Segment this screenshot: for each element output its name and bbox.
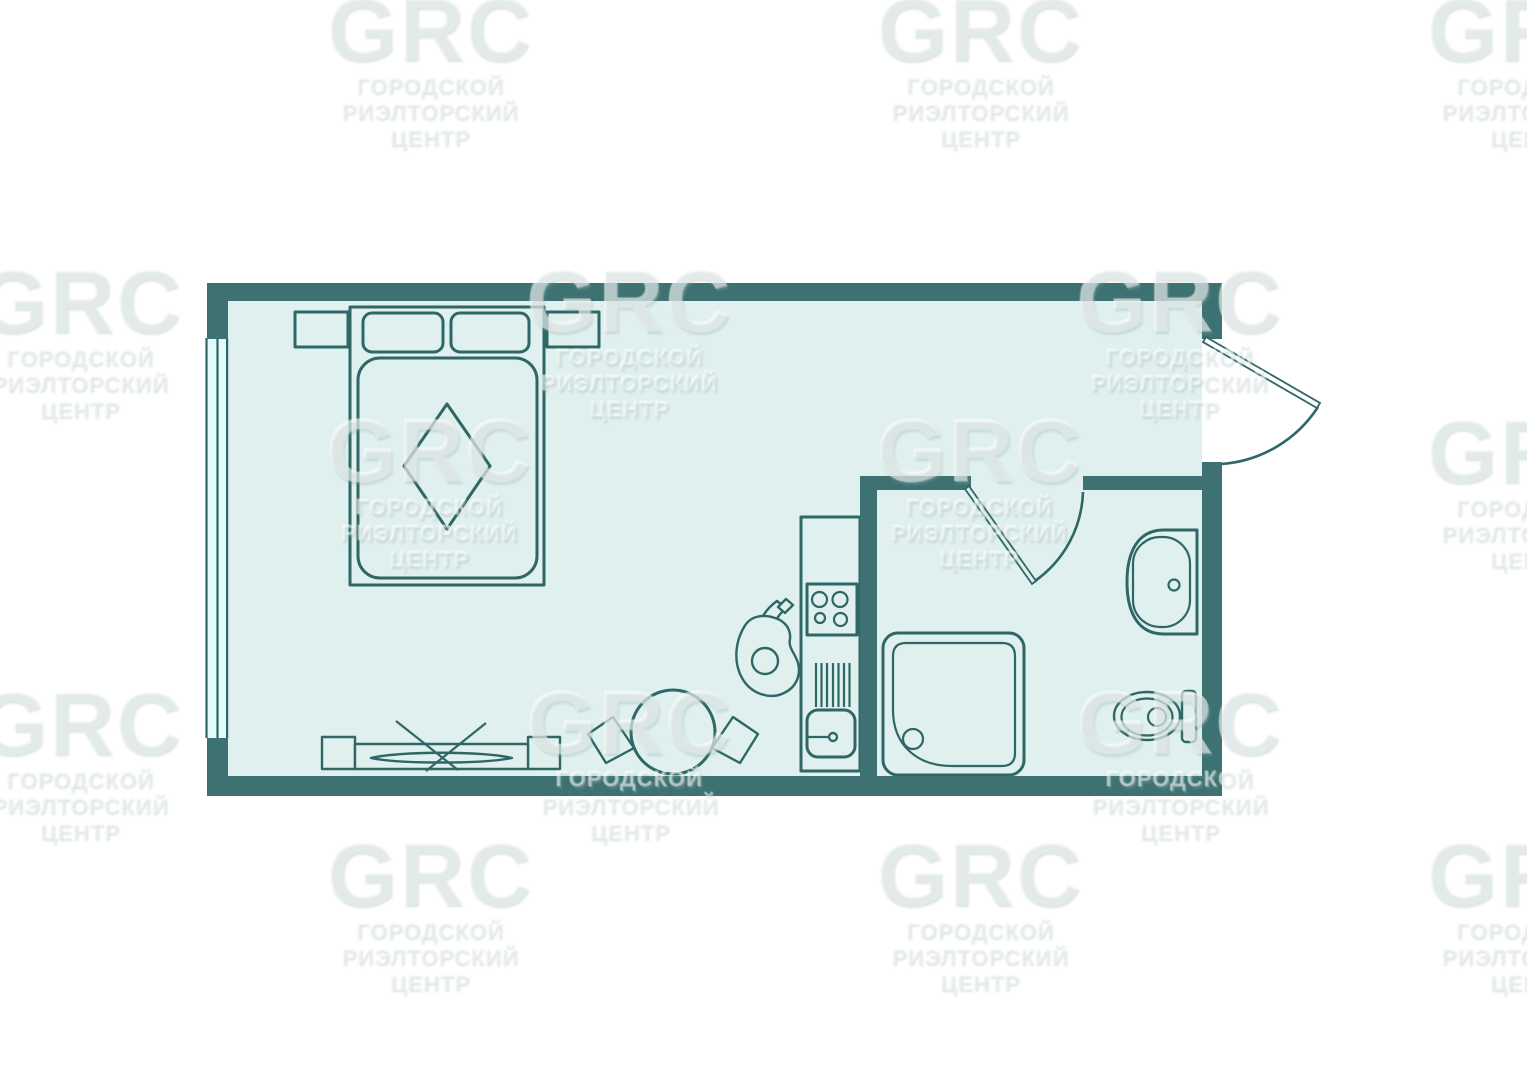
window xyxy=(205,338,228,738)
floor-plan-image xyxy=(0,0,1527,1080)
shower-tray xyxy=(883,633,1024,775)
wall-bottom xyxy=(207,776,1222,796)
pillow-left xyxy=(363,313,443,352)
wall-top xyxy=(207,283,1222,301)
entry-door-swing-arc xyxy=(1222,407,1318,464)
dining-table xyxy=(631,690,715,774)
person-head xyxy=(752,648,778,674)
tv-stand-left-end xyxy=(322,737,355,769)
window-frame-outer-line xyxy=(205,338,207,738)
toilet xyxy=(1114,691,1196,742)
wall-bathroom-top-right xyxy=(1083,476,1203,490)
wall-right-lower xyxy=(1202,462,1222,796)
wall-bathroom-top-left xyxy=(860,476,971,490)
faucet-knob xyxy=(829,733,837,741)
kitchen-block xyxy=(801,517,860,771)
entry-door xyxy=(1203,337,1320,464)
window-frame-middle-line xyxy=(216,338,218,738)
pillow-right xyxy=(451,313,529,352)
wall-left-upper xyxy=(207,283,228,339)
nightstand-left xyxy=(295,312,348,347)
washbasin xyxy=(1127,530,1197,634)
dish-drainer xyxy=(816,663,850,707)
tv-stand-right-end xyxy=(528,737,560,769)
toilet-tank xyxy=(1182,691,1196,742)
entry-door-leaf xyxy=(1203,337,1320,408)
floor-plan-screenshot: GRCГОРОДСКОЙРИЭЛТОРСКИЙЦЕНТРGRCГОРОДСКОЙ… xyxy=(0,0,1527,1080)
wall-bathroom-divider xyxy=(860,476,877,776)
nightstand-right xyxy=(547,312,599,347)
window-frame-inner-line xyxy=(226,338,228,738)
wall-right-upper xyxy=(1202,283,1222,339)
cooktop xyxy=(807,584,857,635)
